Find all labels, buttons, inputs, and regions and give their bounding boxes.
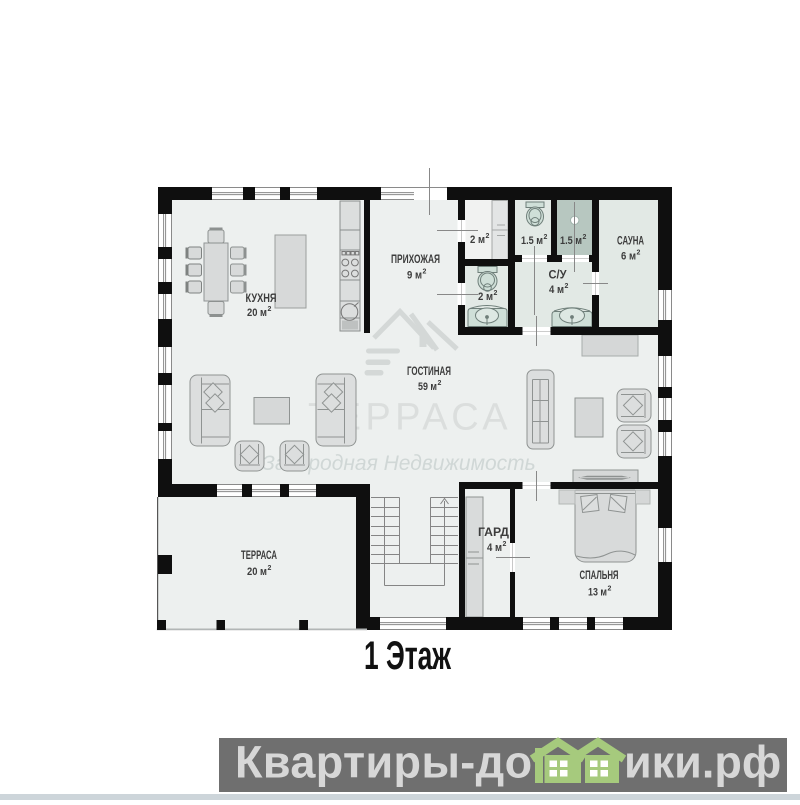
- svg-text:9 м: 9 м: [407, 270, 422, 282]
- svg-text:2: 2: [565, 283, 569, 290]
- svg-text:2: 2: [637, 250, 641, 257]
- svg-text:4 м: 4 м: [487, 542, 502, 554]
- svg-text:59 м: 59 м: [418, 381, 437, 393]
- svg-text:Квартиры-до: Квартиры-до: [235, 737, 533, 788]
- svg-text:2: 2: [486, 233, 490, 240]
- svg-text:2: 2: [268, 306, 272, 313]
- svg-text:ГОСТИНАЯ: ГОСТИНАЯ: [407, 364, 451, 378]
- svg-text:4 м: 4 м: [549, 284, 564, 296]
- svg-text:20 м: 20 м: [247, 566, 267, 578]
- svg-text:С/У: С/У: [549, 268, 567, 282]
- svg-text:САУНА: САУНА: [617, 234, 644, 248]
- svg-text:2: 2: [438, 380, 442, 387]
- svg-text:2: 2: [268, 565, 272, 572]
- svg-text:2: 2: [494, 290, 498, 297]
- svg-text:2 м: 2 м: [478, 291, 493, 303]
- svg-text:СПАЛЬНЯ: СПАЛЬНЯ: [580, 568, 619, 582]
- svg-text:20 м: 20 м: [247, 307, 267, 319]
- svg-text:КУХНЯ: КУХНЯ: [246, 291, 277, 305]
- svg-text:1.5 м: 1.5 м: [521, 235, 543, 247]
- svg-text:2: 2: [583, 234, 587, 241]
- svg-text:ПРИХОЖАЯ: ПРИХОЖАЯ: [391, 252, 440, 266]
- svg-text:ГАРД: ГАРД: [478, 525, 509, 539]
- svg-text:2: 2: [544, 234, 548, 241]
- svg-text:2: 2: [608, 586, 612, 593]
- svg-text:6 м: 6 м: [621, 251, 636, 263]
- svg-text:13 м: 13 м: [588, 587, 607, 599]
- svg-text:2: 2: [423, 269, 427, 276]
- svg-text:ики.рф: ики.рф: [624, 737, 781, 788]
- svg-text:2: 2: [503, 541, 507, 548]
- svg-text:ТЕРРАСА: ТЕРРАСА: [241, 548, 277, 562]
- svg-text:1 Этаж: 1 Этаж: [364, 634, 451, 678]
- svg-text:1.5 м: 1.5 м: [560, 235, 582, 247]
- svg-text:2 м: 2 м: [470, 234, 485, 246]
